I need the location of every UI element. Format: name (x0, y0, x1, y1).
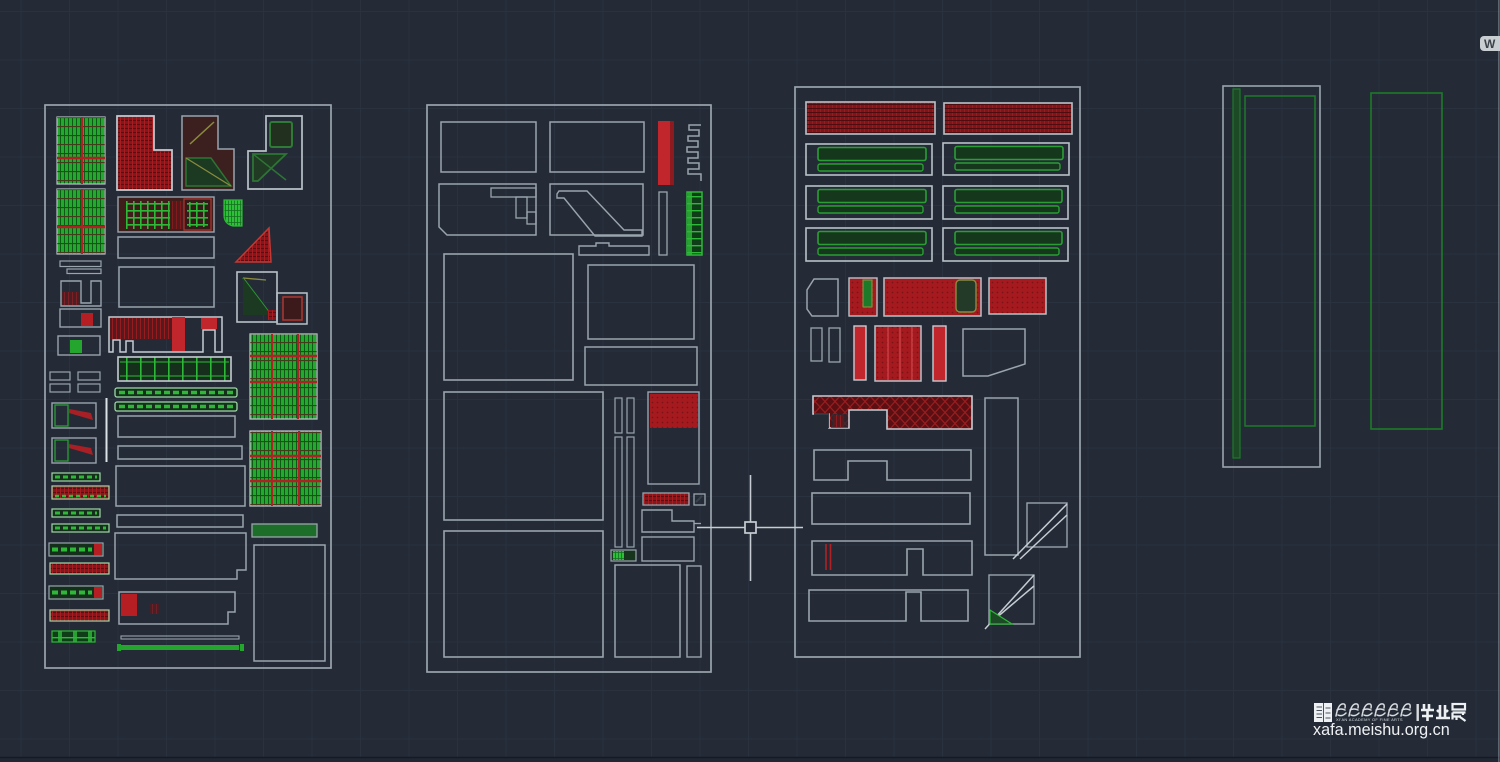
svg-text:xafa.meishu.org.cn: xafa.meishu.org.cn (1313, 721, 1450, 739)
svg-text:W: W (1484, 37, 1496, 51)
